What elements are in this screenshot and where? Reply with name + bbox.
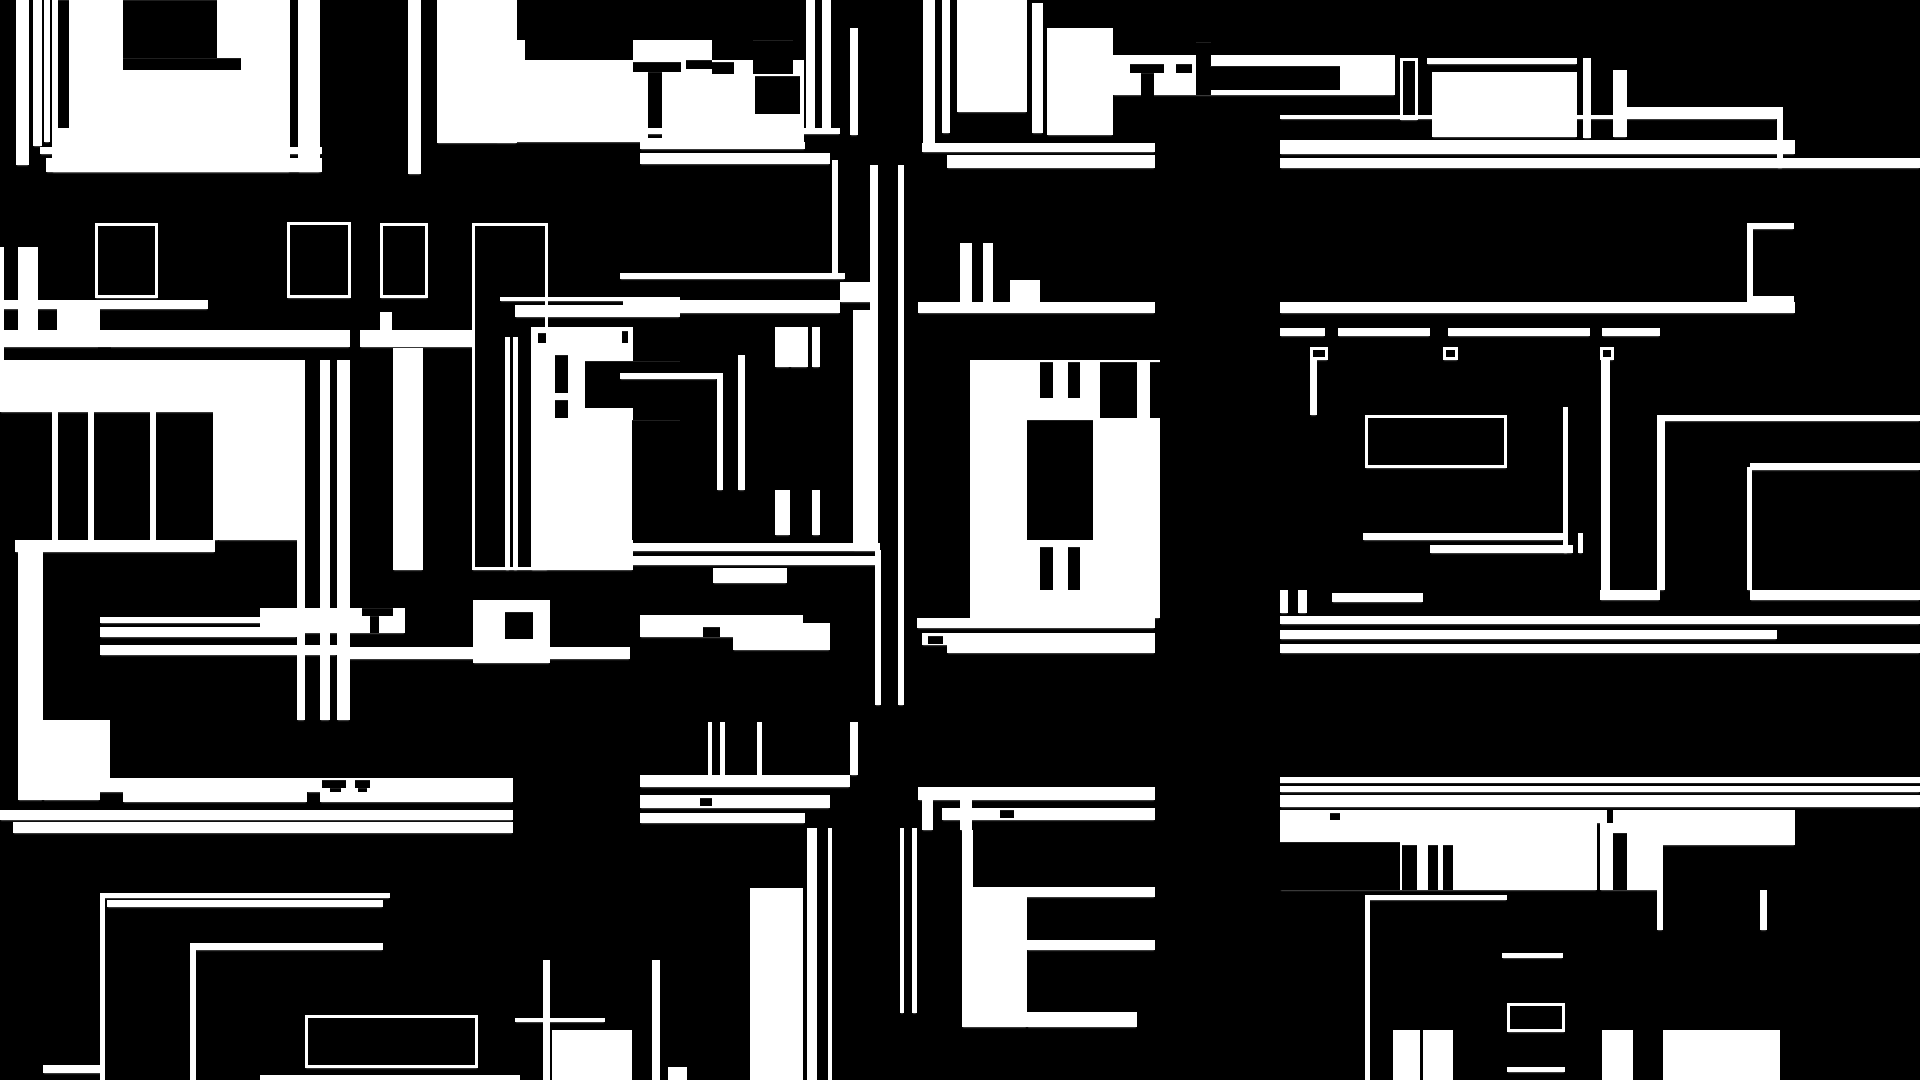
white-block bbox=[40, 147, 322, 154]
white-block bbox=[620, 373, 717, 379]
black-cutout bbox=[632, 420, 680, 540]
outline-frame bbox=[1507, 1003, 1565, 1032]
black-cutout bbox=[1210, 66, 1340, 90]
white-block bbox=[1280, 302, 1795, 313]
black-cutout bbox=[1130, 64, 1164, 73]
white-block bbox=[987, 887, 1155, 897]
black-cutout bbox=[1068, 547, 1080, 590]
white-block bbox=[16, 0, 29, 165]
white-block bbox=[46, 158, 322, 172]
glitch-mosaic bbox=[0, 0, 1920, 1080]
white-block bbox=[1750, 463, 1920, 470]
white-block bbox=[0, 247, 4, 360]
black-cutout bbox=[123, 0, 217, 58]
white-block bbox=[640, 615, 803, 623]
black-cutout bbox=[585, 361, 680, 408]
white-block bbox=[708, 722, 712, 775]
white-block bbox=[757, 722, 762, 775]
white-block bbox=[942, 0, 950, 133]
white-block bbox=[393, 348, 423, 570]
white-block bbox=[1663, 1030, 1780, 1080]
white-block bbox=[640, 142, 805, 149]
white-block bbox=[1430, 545, 1573, 553]
white-block bbox=[88, 412, 94, 540]
white-block bbox=[100, 617, 283, 623]
white-block bbox=[260, 1075, 520, 1080]
white-block bbox=[640, 623, 830, 637]
outline-frame bbox=[287, 222, 351, 298]
white-block bbox=[983, 243, 993, 303]
white-block bbox=[1280, 328, 1325, 336]
outline-frame bbox=[1443, 347, 1458, 360]
black-cutout bbox=[370, 616, 379, 633]
black-cutout bbox=[1040, 362, 1053, 398]
white-block bbox=[100, 645, 337, 655]
white-block bbox=[1280, 644, 1920, 653]
black-cutout bbox=[1141, 73, 1154, 127]
white-block bbox=[652, 960, 660, 1080]
white-block bbox=[44, 0, 50, 142]
white-block bbox=[0, 330, 350, 347]
white-block bbox=[190, 943, 196, 1080]
white-block bbox=[917, 618, 1155, 628]
black-cutout bbox=[1443, 845, 1453, 890]
black-cutout bbox=[322, 780, 346, 788]
black-cutout bbox=[1068, 362, 1080, 398]
white-block bbox=[43, 720, 100, 800]
white-block bbox=[1423, 1030, 1453, 1080]
outline-frame bbox=[1600, 347, 1614, 360]
white-block bbox=[668, 1067, 687, 1080]
outline-frame bbox=[1310, 347, 1328, 360]
white-block bbox=[922, 800, 933, 830]
white-block bbox=[1747, 467, 1752, 590]
white-block bbox=[1280, 590, 1288, 613]
white-block bbox=[1393, 1030, 1420, 1080]
white-block bbox=[633, 40, 712, 62]
white-block bbox=[1032, 3, 1043, 133]
white-block bbox=[922, 143, 1155, 152]
white-block bbox=[757, 1067, 780, 1080]
white-block bbox=[828, 828, 832, 1080]
white-block bbox=[1280, 630, 1777, 639]
black-cutout bbox=[505, 612, 533, 639]
black-cutout bbox=[1100, 362, 1160, 418]
white-block bbox=[57, 309, 100, 330]
white-block bbox=[822, 0, 831, 132]
white-block bbox=[640, 813, 805, 823]
white-block bbox=[1747, 223, 1794, 229]
white-block bbox=[640, 775, 850, 787]
white-block bbox=[1427, 58, 1577, 64]
white-block bbox=[1365, 900, 1370, 1080]
white-block bbox=[1507, 1067, 1565, 1072]
black-cutout bbox=[755, 76, 800, 114]
white-block bbox=[947, 155, 1155, 168]
white-block bbox=[1600, 590, 1660, 600]
white-block bbox=[790, 327, 808, 367]
black-cutout bbox=[1196, 42, 1211, 95]
white-block bbox=[898, 165, 904, 705]
white-block bbox=[775, 490, 790, 535]
black-cutout bbox=[1613, 833, 1627, 890]
black-cutout bbox=[362, 608, 393, 616]
black-cutout bbox=[538, 333, 546, 343]
white-block bbox=[960, 800, 972, 830]
black-cutout bbox=[753, 40, 793, 74]
white-block bbox=[408, 0, 421, 174]
white-block bbox=[1658, 415, 1920, 421]
white-block bbox=[18, 247, 38, 330]
black-cutout bbox=[1280, 783, 1920, 786]
white-block bbox=[18, 720, 43, 800]
white-block bbox=[515, 305, 680, 317]
white-block bbox=[918, 787, 1155, 800]
white-block bbox=[500, 297, 680, 301]
white-block bbox=[18, 552, 43, 720]
white-block bbox=[43, 1065, 103, 1073]
white-block bbox=[380, 312, 392, 343]
white-block bbox=[337, 360, 350, 720]
white-block bbox=[107, 900, 383, 907]
black-cutout bbox=[58, 0, 69, 128]
white-block bbox=[900, 828, 904, 1013]
white-block bbox=[1602, 1030, 1633, 1080]
white-block bbox=[1027, 940, 1155, 950]
black-cutout bbox=[555, 355, 568, 393]
white-block bbox=[1601, 360, 1610, 590]
black-cutout bbox=[703, 627, 720, 637]
white-block bbox=[1578, 533, 1583, 553]
white-block bbox=[918, 302, 1155, 313]
white-block bbox=[840, 282, 878, 302]
black-cutout bbox=[123, 58, 241, 70]
outline-frame bbox=[1400, 58, 1418, 120]
black-cutout bbox=[98, 347, 111, 361]
white-block bbox=[150, 412, 156, 540]
white-block bbox=[100, 898, 105, 1080]
white-block bbox=[957, 0, 1027, 112]
white-block bbox=[1310, 360, 1317, 415]
white-block bbox=[1332, 593, 1423, 602]
white-block bbox=[1365, 895, 1507, 900]
white-block bbox=[1583, 58, 1591, 138]
white-block bbox=[320, 792, 513, 802]
white-block bbox=[52, 412, 58, 540]
white-block bbox=[775, 327, 790, 367]
white-block bbox=[1563, 407, 1568, 553]
white-block bbox=[713, 568, 787, 583]
black-cutout bbox=[355, 780, 370, 788]
white-block bbox=[720, 722, 725, 775]
white-block bbox=[1047, 28, 1113, 135]
white-block bbox=[1432, 72, 1577, 137]
white-block bbox=[15, 540, 215, 552]
outline-frame bbox=[305, 1015, 478, 1068]
outline-frame bbox=[95, 223, 158, 298]
white-block bbox=[923, 0, 935, 143]
white-block bbox=[1657, 415, 1665, 590]
white-block bbox=[812, 327, 820, 367]
white-block bbox=[1448, 328, 1590, 336]
white-block bbox=[123, 792, 307, 802]
black-cutout bbox=[1330, 813, 1340, 820]
black-cutout bbox=[712, 62, 734, 74]
white-block bbox=[0, 810, 513, 820]
black-cutout bbox=[1402, 845, 1417, 890]
white-block bbox=[962, 887, 1027, 1027]
white-block bbox=[33, 0, 42, 146]
white-block bbox=[97, 778, 307, 792]
black-cutout bbox=[700, 798, 712, 806]
white-block bbox=[320, 360, 330, 720]
white-block bbox=[832, 160, 838, 278]
white-block bbox=[620, 273, 845, 279]
white-block bbox=[640, 795, 830, 808]
white-block bbox=[947, 645, 1155, 653]
white-block bbox=[750, 888, 803, 1080]
white-block bbox=[543, 960, 550, 1080]
white-block bbox=[1280, 158, 1920, 168]
white-block bbox=[717, 373, 723, 490]
black-cutout bbox=[555, 400, 568, 418]
white-block bbox=[1280, 795, 1920, 807]
white-block bbox=[195, 943, 383, 950]
white-block bbox=[942, 808, 1155, 820]
white-block bbox=[1280, 616, 1920, 624]
white-block bbox=[1613, 810, 1795, 823]
black-cutout bbox=[1428, 845, 1438, 890]
white-block bbox=[806, 0, 815, 132]
white-block bbox=[297, 360, 305, 720]
white-block bbox=[1338, 328, 1430, 336]
white-block bbox=[853, 310, 878, 550]
white-block bbox=[1298, 590, 1307, 613]
white-block bbox=[505, 337, 510, 570]
black-cutout bbox=[928, 636, 943, 644]
white-block bbox=[1760, 890, 1767, 930]
white-block bbox=[513, 337, 518, 570]
white-block bbox=[620, 543, 880, 551]
white-block bbox=[1280, 115, 1777, 119]
white-block bbox=[733, 637, 830, 650]
white-block bbox=[515, 1018, 605, 1022]
white-block bbox=[1747, 296, 1794, 302]
white-block bbox=[13, 822, 513, 833]
white-block bbox=[922, 633, 1155, 645]
black-cutout bbox=[686, 60, 712, 69]
white-block bbox=[1027, 1012, 1137, 1027]
black-cutout bbox=[1040, 547, 1053, 590]
black-cutout bbox=[622, 331, 628, 343]
black-cutout bbox=[1000, 810, 1014, 818]
white-block bbox=[738, 355, 745, 490]
white-block bbox=[1280, 140, 1795, 154]
white-block bbox=[552, 1030, 632, 1080]
white-block bbox=[1602, 328, 1660, 336]
white-block bbox=[812, 490, 820, 535]
white-block bbox=[960, 243, 972, 303]
white-block bbox=[1750, 590, 1920, 600]
black-cutout bbox=[1176, 64, 1192, 73]
outline-frame bbox=[1365, 415, 1507, 468]
white-block bbox=[962, 830, 973, 887]
white-block bbox=[1747, 229, 1753, 296]
white-block bbox=[875, 550, 881, 705]
white-block bbox=[100, 720, 110, 778]
white-block bbox=[1137, 360, 1150, 510]
white-block bbox=[807, 828, 817, 1080]
white-block bbox=[850, 722, 858, 775]
black-cutout bbox=[633, 62, 681, 72]
white-block bbox=[100, 893, 390, 898]
outline-frame bbox=[380, 223, 428, 298]
white-block bbox=[218, 412, 300, 540]
black-cutout bbox=[1280, 842, 1400, 890]
white-block bbox=[1010, 280, 1040, 302]
white-block bbox=[1627, 823, 1795, 845]
white-block bbox=[1657, 845, 1663, 930]
white-block bbox=[1502, 953, 1563, 958]
white-block bbox=[1363, 533, 1563, 540]
white-block bbox=[1613, 70, 1627, 137]
black-cutout bbox=[1027, 420, 1093, 540]
white-block bbox=[640, 153, 830, 164]
white-block bbox=[0, 360, 300, 412]
white-block bbox=[620, 556, 880, 565]
white-block bbox=[850, 28, 858, 135]
white-block bbox=[622, 128, 840, 134]
white-block bbox=[912, 828, 917, 1013]
